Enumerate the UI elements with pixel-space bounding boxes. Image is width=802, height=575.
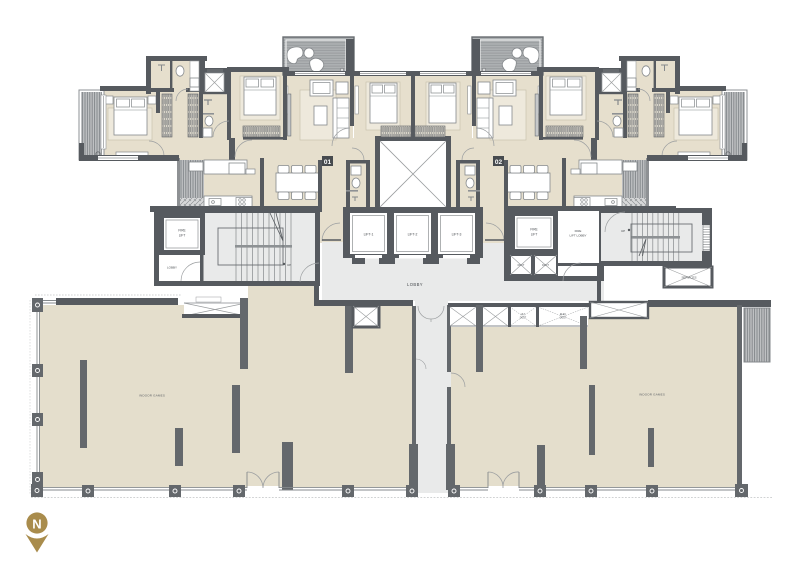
svg-text:FIRE: FIRE [575,229,582,233]
svg-text:LOBBY: LOBBY [167,266,177,270]
svg-text:LIFT LOBBY: LIFT LOBBY [570,234,587,238]
svg-text:LIFT-2: LIFT-2 [408,233,418,237]
svg-text:DUCT: DUCT [560,318,567,320]
svg-text:UP: UP [287,263,291,267]
svg-text:DUCT: DUCT [518,264,525,267]
svg-text:DUCT: DUCT [520,318,527,320]
svg-text:LOBBY: LOBBY [407,282,423,287]
svg-text:FIRE: FIRE [530,228,537,232]
svg-text:SERVICES: SERVICES [681,276,696,280]
svg-text:02: 02 [495,159,503,166]
svg-text:FIRE: FIRE [178,229,185,233]
svg-text:LIFT-3: LIFT-3 [452,233,462,237]
svg-text:UP: UP [621,229,625,233]
svg-text:LIFT: LIFT [179,234,186,238]
svg-text:DUCT: DUCT [542,264,549,267]
svg-text:LILY: LILY [521,314,526,316]
svg-text:N: N [32,517,41,532]
svg-text:INDOOR GAMES: INDOOR GAMES [639,393,665,397]
svg-text:01: 01 [324,159,332,166]
svg-text:INDOOR GAMES: INDOOR GAMES [139,394,165,398]
svg-text:LIFT-1: LIFT-1 [364,233,374,237]
svg-text:LIFT: LIFT [531,233,538,237]
svg-text:ELEC: ELEC [560,314,566,316]
